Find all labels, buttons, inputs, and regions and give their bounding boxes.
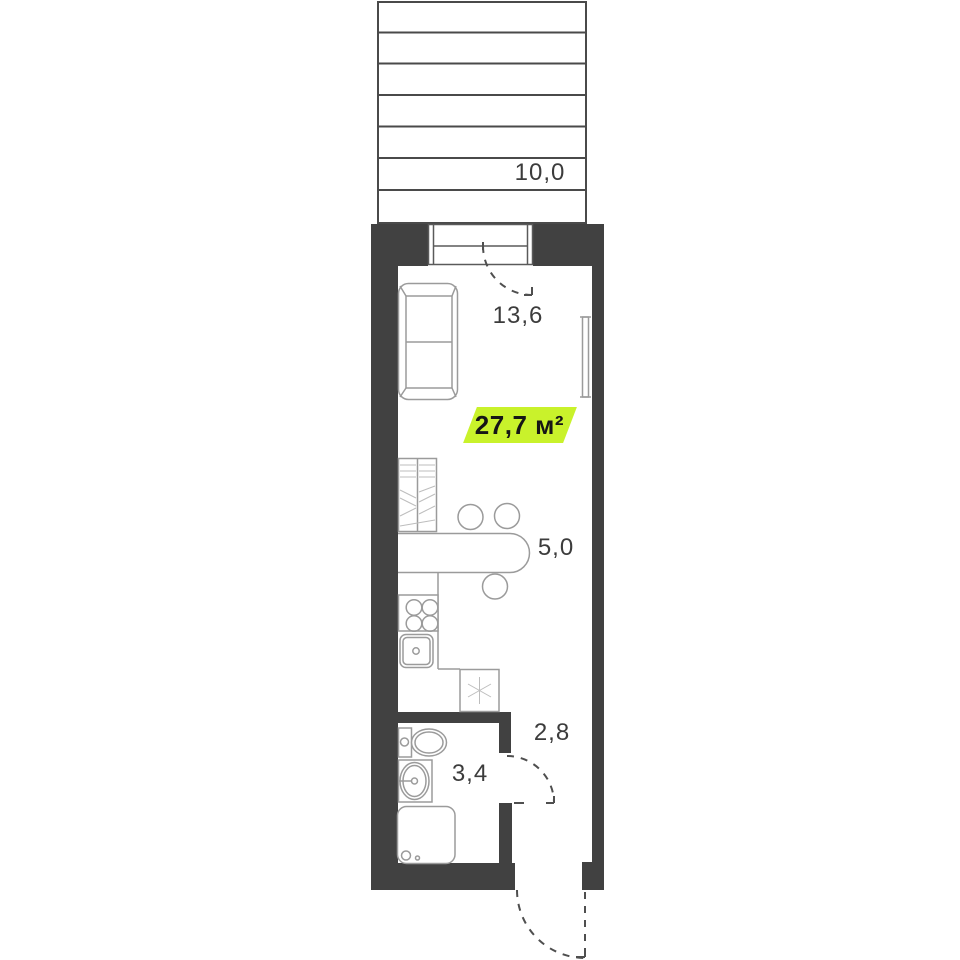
radiator [580,317,591,397]
entry-jamb-right [582,862,604,890]
hallway-area-label: 2,8 [507,719,597,747]
left-wall [371,224,398,890]
bathroom-top-wall [398,712,511,723]
wardrobe [399,459,437,532]
appliance-square [460,670,499,712]
kitchen-area-label: 5,0 [511,534,601,562]
chair [483,574,508,599]
shower [398,807,456,864]
floor-plan: 10,0 13,6 5,0 2,8 3,4 27,7 м² [0,0,960,960]
area-badge: 27,7 м² [463,407,577,443]
bathroom-area-label: 3,4 [425,760,515,788]
living-room-area-label: 13,6 [473,302,563,330]
bottom-wall [371,863,515,890]
kitchen-counter [438,573,460,669]
chair [495,504,520,529]
floor-plan-drawing [0,0,960,960]
area-badge-label: 27,7 м² [475,410,564,441]
sofa [399,284,458,400]
terrace-decking [378,2,586,223]
bathroom-right-wall-lower [499,803,512,863]
entry-door-swing [517,890,585,958]
terrace-area-label: 10,0 [495,159,585,187]
stove [399,595,439,631]
dining-table [398,534,530,573]
top-wall-left [371,224,428,266]
kitchen-sink [400,635,433,668]
chair [458,505,483,530]
window [428,224,533,265]
toilet [399,728,447,757]
